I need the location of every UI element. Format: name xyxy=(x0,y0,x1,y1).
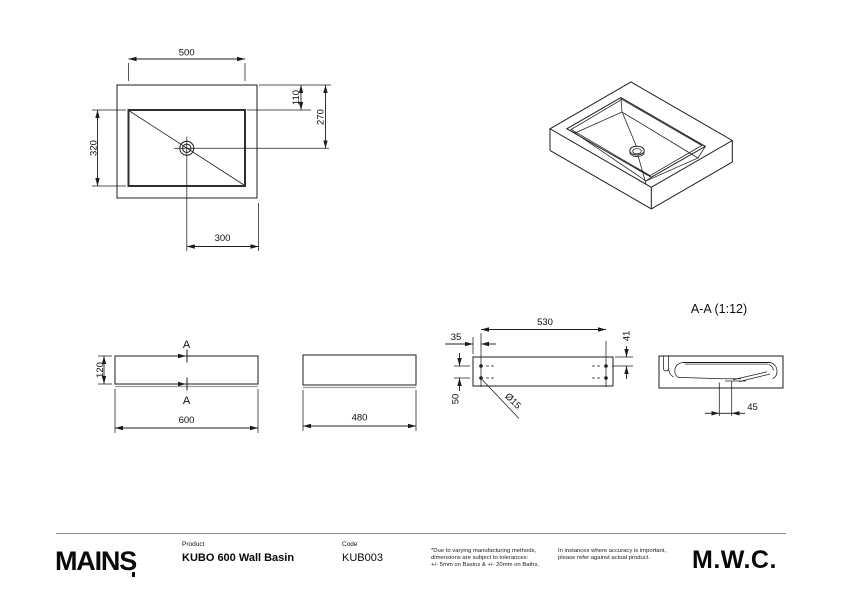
front-elevation: A A 120 600 xyxy=(95,339,258,433)
dim-rear-gap: 50 xyxy=(451,394,462,405)
brand-logo: MAINS xyxy=(55,546,136,577)
drain-symbol-iso xyxy=(630,146,644,156)
product-code: KUB003 xyxy=(342,552,383,564)
dim-front-height: 120 xyxy=(95,362,106,378)
dim-section-outlet: 45 xyxy=(747,402,758,413)
drain-symbol xyxy=(174,137,329,252)
dim-side-depth: 480 xyxy=(352,413,368,424)
code-block: Code KUB003 xyxy=(342,541,383,564)
dim-plan-width: 500 xyxy=(179,48,195,59)
dim-plan-drain-centre: 300 xyxy=(215,233,231,244)
side-elevation: 480 xyxy=(303,355,416,431)
dim-rear-span: 530 xyxy=(537,317,553,328)
dim-rear-hole-dia: Ø15 xyxy=(502,391,522,411)
section-label-top: A xyxy=(183,339,191,351)
product-block: Product KUBO 600 Wall Basin xyxy=(182,541,294,564)
section-view: A-A (1:12) 45 xyxy=(659,302,783,416)
dim-plan-drain-offset: 270 xyxy=(316,109,327,125)
code-label: Code xyxy=(342,541,383,548)
section-title: A-A (1:12) xyxy=(691,302,747,316)
accuracy-disclaimer: In instances where accuracy is important… xyxy=(558,548,666,562)
plan-view: 500 320 110 270 300 xyxy=(89,48,332,252)
footer-divider xyxy=(56,533,786,534)
tolerance-disclaimer: *Due to varying manufacturing methods, d… xyxy=(431,548,539,569)
dim-rear-top: 41 xyxy=(622,331,633,342)
dim-plan-depth: 320 xyxy=(89,140,100,156)
dim-plan-rim-offset: 110 xyxy=(291,90,302,105)
dim-front-width: 600 xyxy=(179,415,195,426)
rear-fixing-view: 530 35 41 50 Ø15 xyxy=(445,317,633,419)
brand-logo-text: MAINS xyxy=(55,546,136,576)
manufacturer-logo: M.W.C. xyxy=(692,546,777,575)
brand-logo-tail xyxy=(132,572,135,577)
dim-rear-edge: 35 xyxy=(451,332,462,343)
section-cut-marker: A A xyxy=(171,339,191,407)
product-name: KUBO 600 Wall Basin xyxy=(182,552,294,564)
isometric-view xyxy=(550,82,732,209)
technical-drawing: 500 320 110 270 300 xyxy=(0,0,842,533)
product-label: Product xyxy=(182,541,294,548)
section-label-bottom: A xyxy=(183,395,191,407)
